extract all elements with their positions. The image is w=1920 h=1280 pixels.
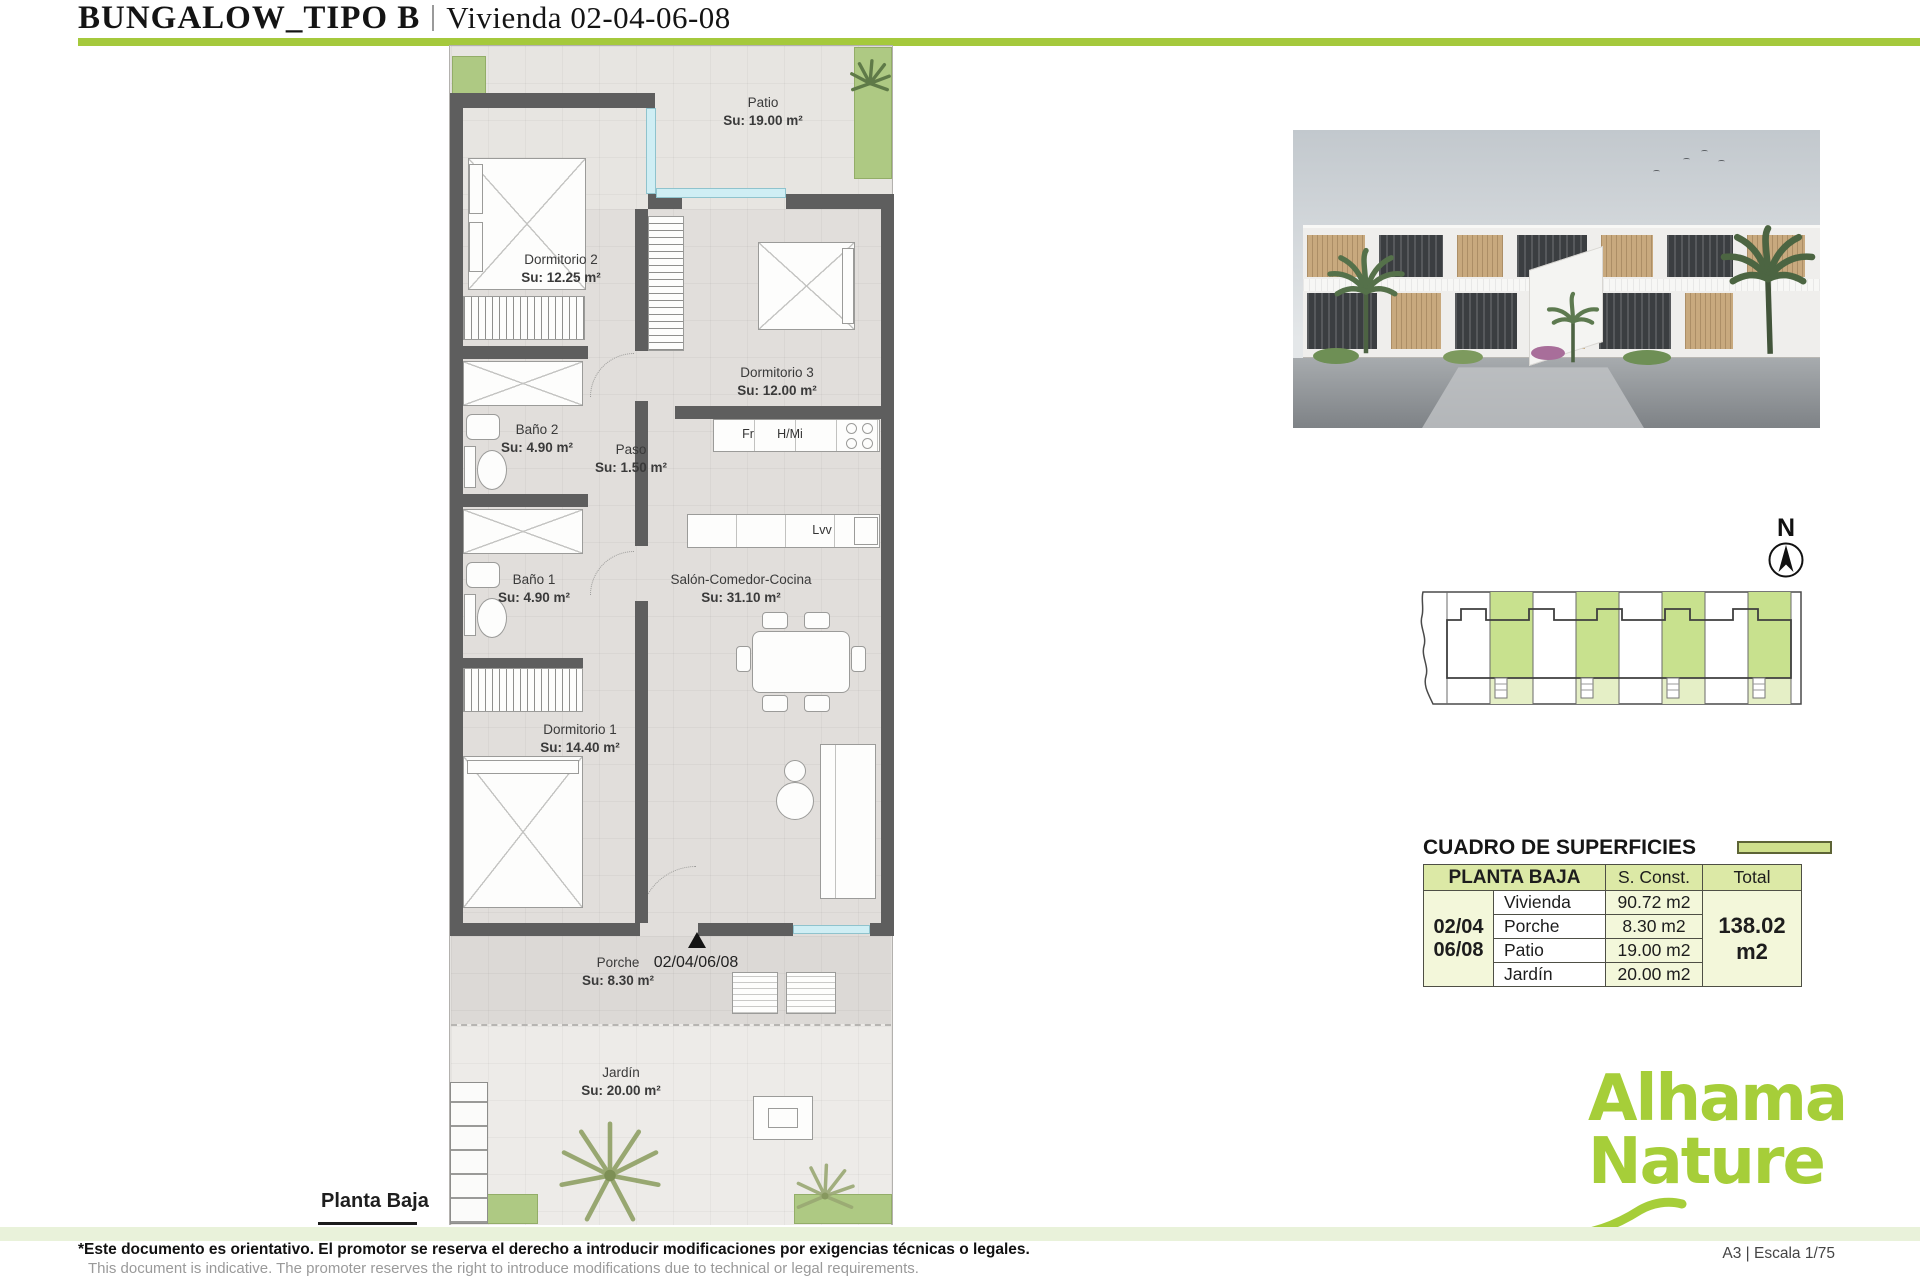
palm-tree-icon <box>785 1161 865 1231</box>
north-label: N <box>1766 516 1806 541</box>
bird-icon <box>1653 170 1660 173</box>
garden-table-inner <box>768 1108 798 1128</box>
wood-panel <box>1457 235 1503 277</box>
pillow <box>469 164 483 214</box>
site-plan-diagram <box>1393 590 1805 708</box>
exterior-stairs <box>450 1082 488 1224</box>
brand-logo: Alhama Nature <box>1588 1068 1846 1193</box>
room-label-patio: Patio Su: 19.00 m² <box>723 94 803 129</box>
palm-tree-icon <box>1713 190 1820 390</box>
logo-line-1: Alhama <box>1588 1068 1846 1131</box>
floor-name-label: Planta Baja <box>321 1190 429 1213</box>
entrance-units-label: 02/04/06/08 <box>636 954 756 972</box>
wall-segment <box>463 346 588 359</box>
compass-arrow-icon <box>1767 541 1805 579</box>
wall-segment <box>450 923 640 936</box>
row-label: Vivienda <box>1494 891 1606 915</box>
surfaces-table: PLANTA BAJA S. Const. Total 02/04 06/08 … <box>1423 864 1802 987</box>
light-path <box>1420 367 1647 428</box>
washbasin <box>466 414 500 440</box>
room-label-dormitorio-1: Dormitorio 1 Su: 14.40 m² <box>540 721 620 756</box>
shower-tray <box>463 509 583 554</box>
chair <box>762 612 788 629</box>
header-constructed: S. Const. <box>1606 865 1703 891</box>
shower-tray <box>463 361 583 406</box>
sofa <box>820 744 876 899</box>
entrance-arrow-icon <box>688 932 706 948</box>
disclaimer-primary: *Este documento es orientativo. El promo… <box>78 1241 1030 1259</box>
wall-segment <box>635 209 648 351</box>
glass-panel <box>1599 293 1671 349</box>
palm-tree-icon <box>846 50 894 112</box>
wall-segment <box>786 194 894 209</box>
room-label-paso: Paso Su: 1.50 m² <box>595 441 667 476</box>
wall-segment <box>881 194 894 936</box>
room-label-jardin: Jardín Su: 20.00 m² <box>581 1064 661 1099</box>
palm-tree-icon <box>1543 280 1603 375</box>
chair <box>804 695 830 712</box>
accent-bar <box>78 38 1920 46</box>
title-main: BUNGALOW_TIPO B <box>78 0 420 37</box>
plan-sheet: BUNGALOW_TIPO B Vivienda 02-04-06-08 <box>0 0 1920 1280</box>
porch-chair <box>786 972 836 1014</box>
window <box>646 108 656 194</box>
wall-segment <box>450 93 655 108</box>
surfaces-title-bar <box>1737 841 1832 854</box>
bed <box>463 756 583 908</box>
chair <box>804 612 830 629</box>
row-value: 8.30 m2 <box>1606 915 1703 939</box>
logo-line-2: Nature <box>1588 1131 1846 1194</box>
row-value: 19.00 m2 <box>1606 939 1703 963</box>
hob-oven-label: H/Mi <box>777 427 803 441</box>
room-label-dormitorio-2: Dormitorio 2 Su: 12.25 m² <box>521 251 601 286</box>
unit-line: 02/04 <box>1433 916 1483 938</box>
bed <box>758 242 855 330</box>
palm-tree-icon <box>545 1118 675 1233</box>
footer-band <box>0 1227 1920 1241</box>
wood-panel <box>1601 235 1653 277</box>
unit-line: 06/08 <box>1433 939 1483 961</box>
window <box>656 188 786 198</box>
sink <box>854 517 878 545</box>
title-sub: Vivienda 02-04-06-08 <box>446 0 731 36</box>
hob-burner <box>846 438 857 449</box>
building-render-photo <box>1293 130 1820 428</box>
disclaimer-secondary: This document is indicative. The promote… <box>88 1260 919 1277</box>
header-total: Total <box>1703 865 1802 891</box>
hall-closet <box>648 216 684 351</box>
chair <box>851 646 866 672</box>
wall-segment <box>463 494 588 507</box>
pillow <box>467 760 579 774</box>
wall-segment <box>450 93 463 936</box>
table-row: 02/04 06/08 Vivienda 90.72 m2 138.02 m2 <box>1424 891 1802 915</box>
porch-chair <box>732 972 778 1014</box>
row-label: Patio <box>1494 939 1606 963</box>
dining-table <box>752 631 850 693</box>
window <box>793 925 870 934</box>
wall-segment <box>870 923 894 936</box>
sheet-format-scale: A3 | Escala 1/75 <box>1722 1245 1835 1263</box>
pillow <box>469 222 483 272</box>
room-label-dormitorio-3: Dormitorio 3 Su: 12.00 m² <box>737 364 817 399</box>
title-divider <box>432 5 434 31</box>
row-label: Porche <box>1494 915 1606 939</box>
row-label: Jardín <box>1494 963 1606 987</box>
chair <box>736 646 751 672</box>
bird-icon <box>1701 150 1708 153</box>
surfaces-table-title: CUADRO DE SUPERFICIES <box>1423 836 1696 860</box>
toilet-cistern <box>464 446 476 488</box>
total-value-cell: 138.02 m2 <box>1703 891 1802 987</box>
table-header-row: PLANTA BAJA S. Const. Total <box>1424 865 1802 891</box>
toilet-cistern <box>464 594 476 636</box>
pillow <box>842 248 854 324</box>
wardrobe <box>463 668 583 712</box>
floor-plan: Patio Su: 19.00 m² Dormitorio 2 Su: 12.2… <box>449 45 893 1225</box>
bush <box>1443 350 1483 364</box>
header-zone: PLANTA BAJA <box>1424 865 1606 891</box>
room-label-bano-1: Baño 1 Su: 4.90 m² <box>498 571 570 606</box>
row-value: 20.00 m2 <box>1606 963 1703 987</box>
chair <box>762 695 788 712</box>
compass: N <box>1766 516 1806 584</box>
floor-name-underline <box>318 1222 417 1225</box>
hob-burner <box>846 423 857 434</box>
palm-tree-icon <box>1321 226 1411 376</box>
kitchen-island <box>687 514 880 548</box>
dishwasher-label: Lvv <box>812 523 831 537</box>
bird-icon <box>1718 160 1725 163</box>
fridge-label: Fr <box>742 427 754 441</box>
hob-burner <box>862 423 873 434</box>
hob-burner <box>862 438 873 449</box>
glass-panel <box>1455 293 1517 349</box>
bird-icon <box>1683 158 1690 161</box>
side-table <box>776 782 814 820</box>
wall-segment <box>635 601 648 923</box>
wall-segment <box>463 658 583 668</box>
washbasin <box>466 562 500 588</box>
side-table <box>784 760 806 782</box>
wardrobe <box>463 296 585 340</box>
room-label-salon: Salón-Comedor-Cocina Su: 31.10 m² <box>670 571 811 606</box>
page-title: BUNGALOW_TIPO B Vivienda 02-04-06-08 <box>78 0 731 36</box>
unit-group-cell: 02/04 06/08 <box>1424 891 1494 987</box>
row-value: 90.72 m2 <box>1606 891 1703 915</box>
bush <box>1623 350 1671 365</box>
wall-segment <box>698 923 793 936</box>
room-label-bano-2: Baño 2 Su: 4.90 m² <box>501 421 573 456</box>
wall-segment <box>675 406 894 419</box>
